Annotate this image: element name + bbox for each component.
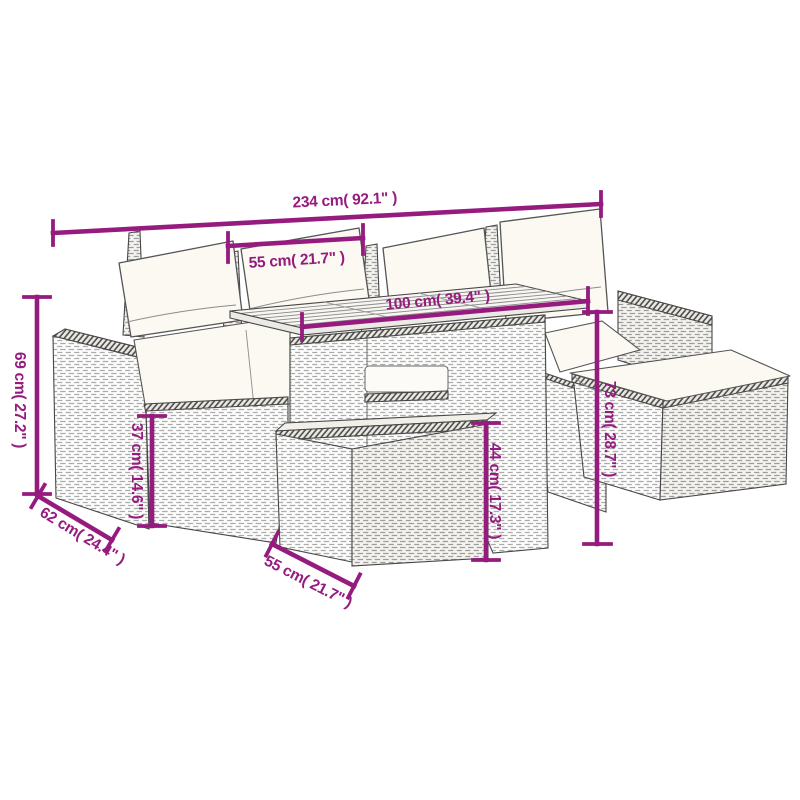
left-sofa [53,322,290,543]
dimension-label: 234 cm( 92.1" ) [292,189,397,211]
dimension-label: 37 cm( 14.6" ) [128,423,145,519]
left-base-face [146,404,288,543]
dimension-label: 44 cm( 17.3" ) [486,443,503,539]
table-shelf-opening [365,366,448,392]
left-seat-cushions [134,322,290,410]
footstool-left-face [276,434,352,562]
furniture-diagram-canvas: 234 cm( 92.1" ) 55 cm( 21.7" ) 100 cm( 3… [0,0,800,800]
footstool-front-face [352,424,488,566]
dimension-label: 69 cm( 27.2" ) [11,352,28,448]
dimension-label: 73 cm( 28.7" ) [601,381,618,477]
product-dimension-diagram: 234 cm( 92.1" ) 55 cm( 21.7" ) 100 cm( 3… [0,0,800,800]
